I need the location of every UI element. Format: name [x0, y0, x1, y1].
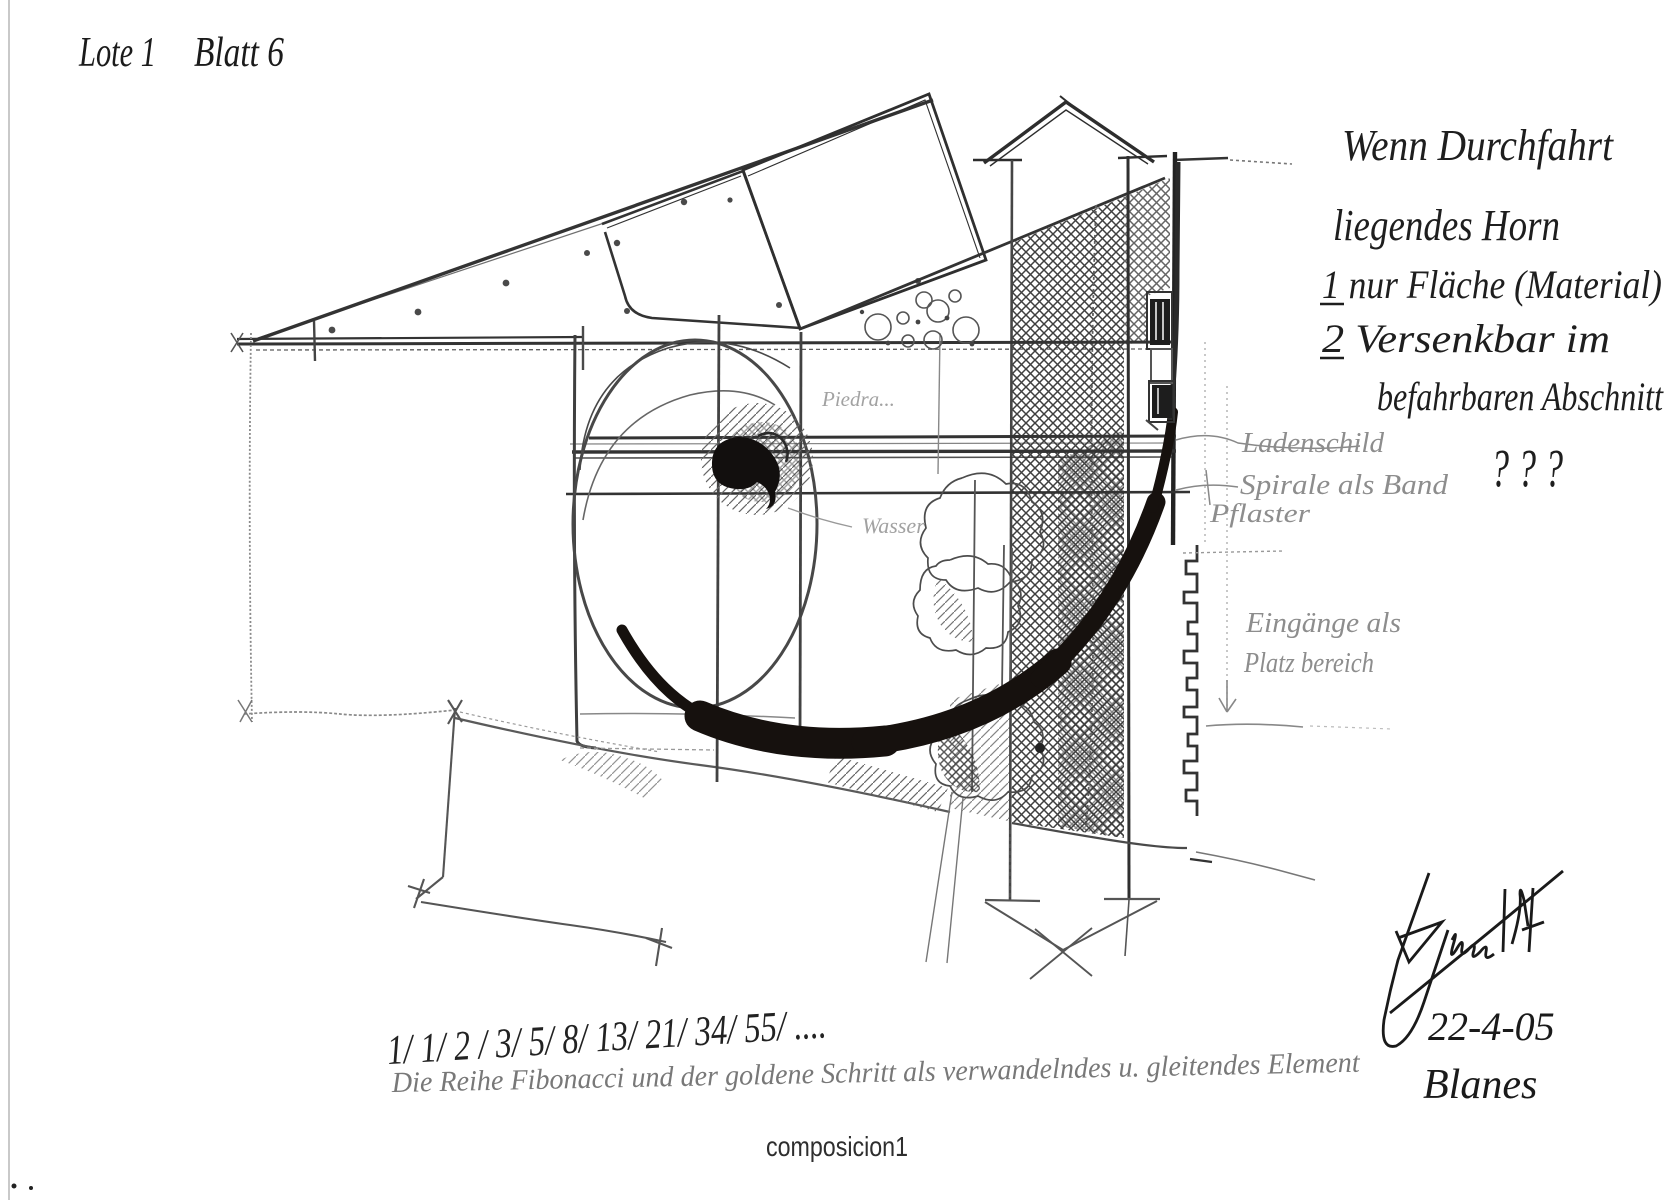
svg-text:Pflaster: Pflaster — [1209, 499, 1311, 528]
svg-text:composicion1: composicion1 — [766, 1131, 908, 1162]
svg-text:1 nur Fläche (Material): 1 nur Fläche (Material) — [1322, 262, 1662, 307]
svg-text:2 Versenkbar im: 2 Versenkbar im — [1322, 316, 1610, 361]
svg-text:Blatt 6: Blatt 6 — [194, 30, 284, 76]
svg-text:Eingänge als: Eingänge als — [1245, 608, 1401, 639]
svg-text:Wasser: Wasser — [862, 513, 925, 538]
svg-text:Lote 1: Lote 1 — [78, 30, 156, 76]
svg-text:? ? ?: ? ? ? — [1491, 438, 1563, 498]
svg-text:22-4-05: 22-4-05 — [1428, 1004, 1555, 1049]
svg-text:Platz bereich: Platz bereich — [1243, 648, 1374, 679]
svg-text:Piedra...: Piedra... — [821, 387, 895, 411]
svg-text:Ladenschild: Ladenschild — [1241, 428, 1385, 459]
svg-text:Wenn Durchfahrt: Wenn Durchfahrt — [1342, 121, 1615, 170]
svg-text:Blanes: Blanes — [1423, 1062, 1537, 1108]
svg-text:befahrbaren Abschnitt: befahrbaren Abschnitt — [1377, 374, 1664, 419]
svg-text:liegendes Horn: liegendes Horn — [1333, 201, 1560, 250]
svg-text:Spirale als Band: Spirale als Band — [1240, 470, 1449, 501]
